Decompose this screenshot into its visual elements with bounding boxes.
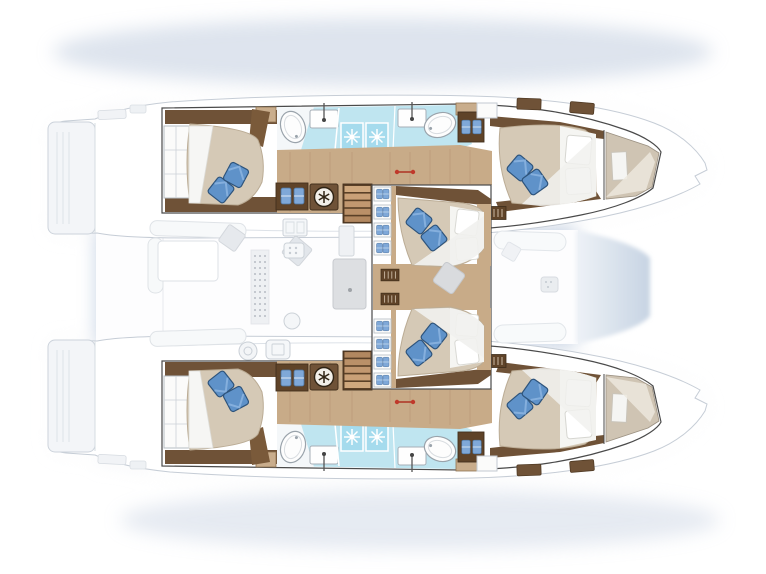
cockpit-table bbox=[158, 241, 218, 281]
starboard-swim-platform bbox=[48, 340, 95, 452]
storage-box bbox=[541, 277, 558, 292]
port-mid-cabin bbox=[373, 186, 491, 287]
port-swim-platform bbox=[48, 122, 95, 234]
saloon-door-panel bbox=[333, 259, 366, 309]
fridge bbox=[339, 226, 354, 256]
door-handle bbox=[348, 288, 352, 292]
white-hatch bbox=[477, 103, 497, 118]
cockpit-bench bbox=[150, 328, 246, 346]
control-panel bbox=[266, 340, 290, 359]
trampoline bbox=[576, 230, 650, 344]
foredeck-bench bbox=[494, 323, 567, 344]
starboard-mid-cabin bbox=[373, 287, 491, 388]
locker-grid bbox=[284, 243, 304, 258]
round-basin bbox=[284, 313, 300, 329]
hob-dial bbox=[239, 342, 257, 360]
boat-floor-plan: Catamaran 6-cabin layout — top-down deck… bbox=[0, 0, 766, 574]
